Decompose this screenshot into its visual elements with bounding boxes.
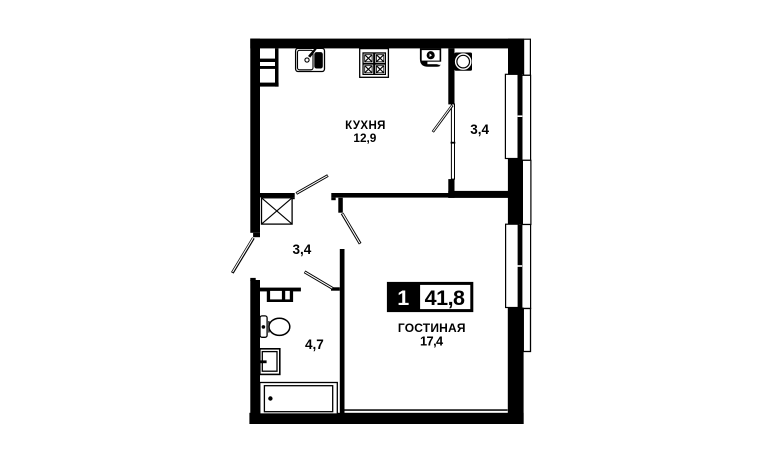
svg-text:4,7: 4,7 [305, 337, 324, 352]
svg-text:12,9: 12,9 [353, 131, 376, 145]
svg-text:1: 1 [397, 286, 409, 310]
svg-text:17,4: 17,4 [420, 333, 444, 348]
svg-text:3,4: 3,4 [470, 122, 489, 137]
svg-text:3,4: 3,4 [293, 242, 312, 257]
svg-text:41,8: 41,8 [425, 286, 465, 310]
